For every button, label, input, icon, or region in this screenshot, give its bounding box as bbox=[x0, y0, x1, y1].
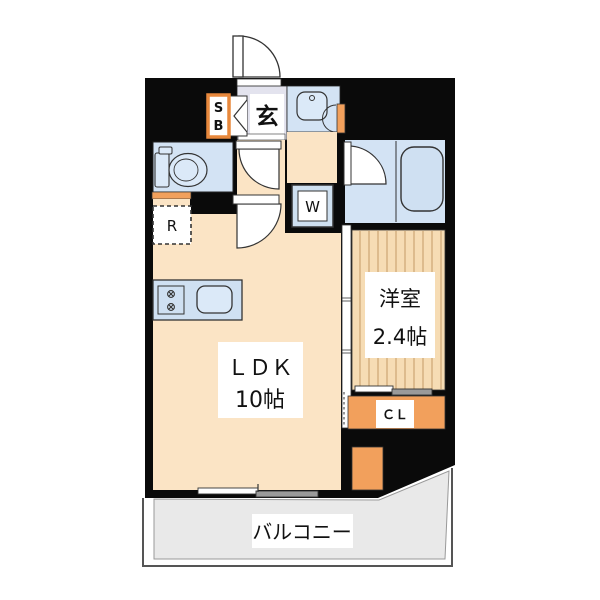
corridor-floor-right bbox=[287, 132, 337, 183]
washbasin-door-leaf bbox=[337, 104, 345, 133]
service-space bbox=[352, 447, 383, 490]
ldk-label-line1: ＬＤＫ bbox=[227, 356, 293, 381]
western-sliding-door-panel bbox=[392, 389, 432, 395]
toilet-icon bbox=[155, 153, 169, 187]
ldk-door-leaf bbox=[233, 195, 279, 204]
western-room-label-line1: 洋室 bbox=[379, 287, 421, 311]
toilet-tank-button-icon bbox=[159, 147, 172, 154]
western-room-label-line2: 2.4帖 bbox=[373, 325, 427, 349]
shoe-box-label-s: S bbox=[214, 101, 223, 116]
washer-label: W bbox=[305, 198, 320, 216]
balcony-label: バルコニー bbox=[252, 520, 352, 544]
bathtub-icon bbox=[401, 147, 443, 211]
kitchen-sink-icon bbox=[197, 286, 232, 313]
hall-door-leaf bbox=[236, 141, 281, 149]
western-sliding-door-panel bbox=[355, 386, 393, 392]
ldk-label-line2: 10帖 bbox=[235, 388, 285, 413]
entrance-door-leaf bbox=[233, 36, 243, 77]
balcony-window-panel bbox=[198, 488, 258, 494]
toilet-bowl-icon bbox=[169, 154, 207, 187]
shoe-box-label-b: B bbox=[214, 119, 224, 134]
refrigerator-label: R bbox=[167, 217, 177, 235]
floor-plan: 玄 S B W R ＬＤＫ 10帖 洋室 2.4帖 ＣＬ バルコニー bbox=[0, 0, 600, 600]
balcony-window-panel bbox=[256, 491, 318, 497]
entrance-label: 玄 bbox=[256, 103, 279, 130]
bathroom-door-leaf bbox=[344, 142, 351, 185]
toilet-counter-strip bbox=[152, 192, 191, 199]
closet-label: ＣＬ bbox=[382, 408, 408, 423]
